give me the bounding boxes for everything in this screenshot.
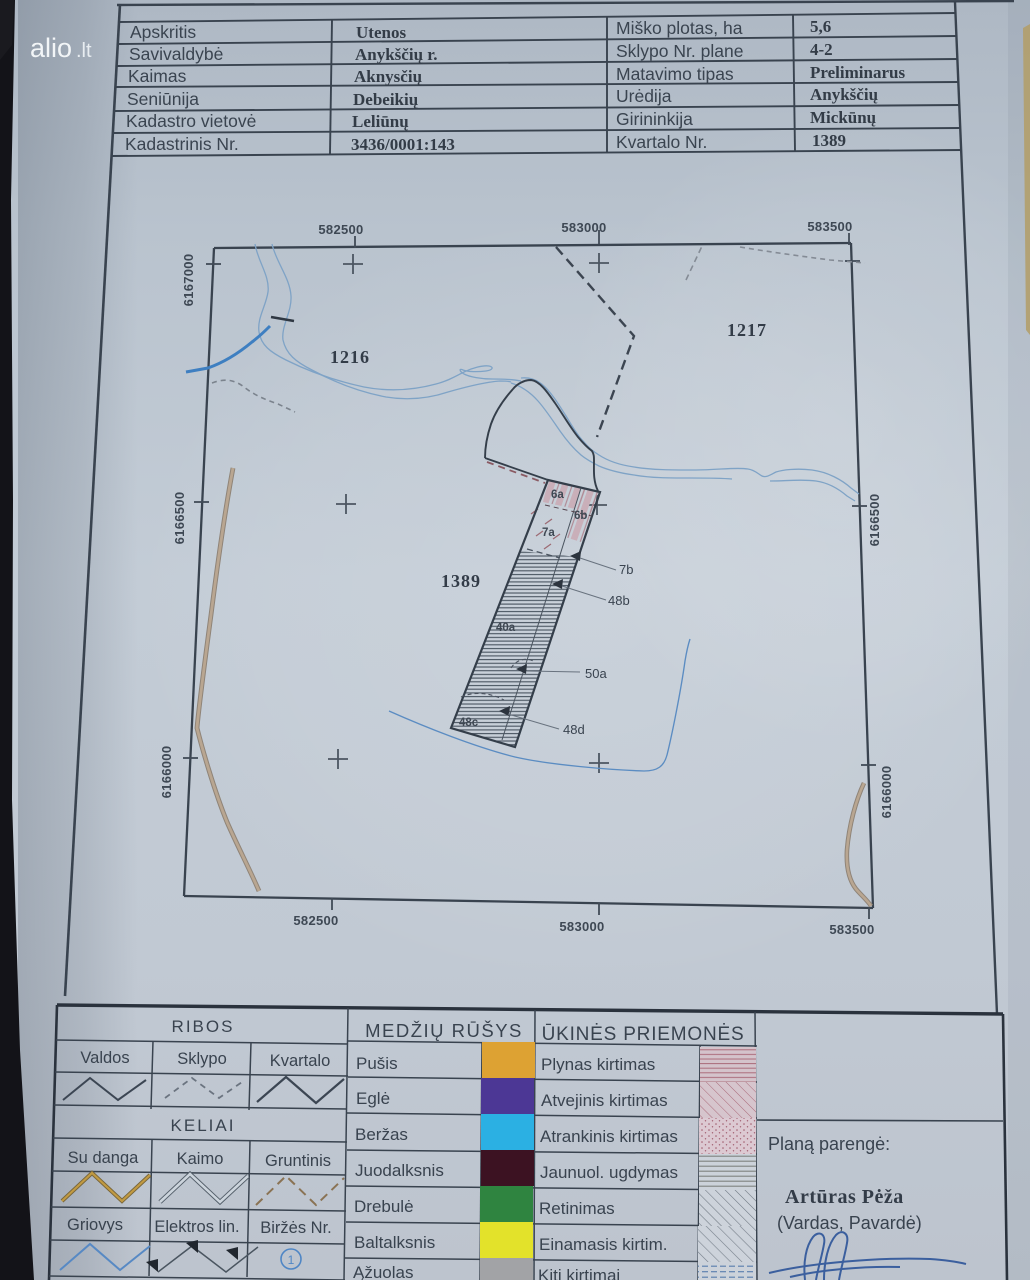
- svg-text:Atrankinis kirtimas: Atrankinis kirtimas: [540, 1127, 678, 1146]
- svg-text:Gruntinis: Gruntinis: [265, 1152, 331, 1170]
- svg-text:Ąžuolas: Ąžuolas: [353, 1263, 413, 1280]
- svg-text:Anykščių: Anykščių: [810, 85, 878, 104]
- svg-text:1: 1: [288, 1253, 295, 1267]
- svg-text:Elektros lin.: Elektros lin.: [154, 1218, 239, 1236]
- svg-text:6166500: 6166500: [172, 492, 187, 545]
- svg-text:Aknysčių: Aknysčių: [354, 67, 422, 86]
- svg-text:Eglė: Eglė: [356, 1089, 390, 1108]
- svg-text:Kaimas: Kaimas: [128, 66, 187, 86]
- svg-text:6167000: 6167000: [181, 254, 196, 307]
- svg-text:Matavimo tipas: Matavimo tipas: [616, 64, 734, 84]
- svg-text:Planą parengė:: Planą parengė:: [768, 1134, 890, 1154]
- svg-text:582500: 582500: [293, 913, 338, 928]
- svg-text:Jaunuol. ugdymas: Jaunuol. ugdymas: [540, 1163, 678, 1182]
- svg-text:Urėdija: Urėdija: [616, 86, 672, 106]
- svg-text:48b: 48b: [608, 593, 630, 608]
- svg-text:ŪKINĖS PRIEMONĖS: ŪKINĖS PRIEMONĖS: [542, 1024, 745, 1045]
- svg-text:5,6: 5,6: [810, 17, 831, 36]
- svg-text:Atvejinis kirtimas: Atvejinis kirtimas: [541, 1091, 668, 1110]
- svg-text:(Vardas, Pavardė): (Vardas, Pavardė): [777, 1213, 922, 1233]
- svg-text:Kiti kirtimai: Kiti kirtimai: [538, 1266, 620, 1280]
- svg-text:6b: 6b: [574, 510, 587, 522]
- svg-text:Griovys: Griovys: [67, 1216, 123, 1234]
- svg-text:583500: 583500: [807, 219, 852, 234]
- svg-text:583000: 583000: [559, 919, 604, 934]
- svg-text:48c: 48c: [459, 717, 479, 729]
- svg-text:Valdos: Valdos: [80, 1049, 129, 1067]
- svg-text:582500: 582500: [318, 222, 363, 237]
- svg-text:RIBOS: RIBOS: [172, 1017, 235, 1036]
- svg-text:Kvartalo: Kvartalo: [270, 1052, 331, 1070]
- svg-text:6a: 6a: [551, 489, 564, 501]
- svg-text:KELIAI: KELIAI: [171, 1116, 236, 1135]
- svg-text:7a: 7a: [542, 527, 555, 539]
- svg-text:alio: alio: [30, 33, 72, 63]
- svg-text:Retinimas: Retinimas: [539, 1199, 615, 1218]
- svg-text:Seniūnija: Seniūnija: [127, 89, 199, 109]
- svg-text:.lt: .lt: [76, 40, 92, 62]
- svg-text:1216: 1216: [330, 347, 370, 367]
- svg-text:1389: 1389: [812, 131, 846, 150]
- svg-text:7b: 7b: [619, 562, 633, 577]
- svg-text:MEDŽIŲ RŪŠYS: MEDŽIŲ RŪŠYS: [365, 1020, 523, 1041]
- svg-text:Savivaldybė: Savivaldybė: [129, 44, 223, 64]
- svg-text:Kadastrinis Nr.: Kadastrinis Nr.: [125, 134, 239, 154]
- svg-text:Leliūnų: Leliūnų: [352, 112, 409, 131]
- svg-text:Su danga: Su danga: [68, 1149, 139, 1167]
- svg-text:Juodalksnis: Juodalksnis: [355, 1161, 444, 1180]
- svg-text:Einamasis kirtim.: Einamasis kirtim.: [539, 1235, 667, 1254]
- svg-text:4-2: 4-2: [810, 40, 833, 59]
- svg-text:Baltalksnis: Baltalksnis: [354, 1233, 435, 1252]
- svg-text:Kvartalo Nr.: Kvartalo Nr.: [616, 132, 707, 152]
- svg-text:Utenos: Utenos: [356, 23, 406, 42]
- svg-text:6166000: 6166000: [879, 766, 894, 819]
- svg-text:1217: 1217: [727, 320, 767, 340]
- svg-text:583500: 583500: [829, 922, 874, 937]
- svg-text:Anykščių r.: Anykščių r.: [355, 45, 438, 64]
- svg-text:1389: 1389: [441, 571, 481, 591]
- svg-text:Beržas: Beržas: [355, 1125, 408, 1144]
- svg-text:Plynas kirtimas: Plynas kirtimas: [541, 1055, 655, 1074]
- svg-text:48d: 48d: [563, 722, 585, 737]
- svg-text:40a: 40a: [496, 622, 516, 634]
- svg-text:6166000: 6166000: [159, 746, 174, 799]
- svg-text:Biržės Nr.: Biržės Nr.: [260, 1219, 332, 1237]
- svg-text:6166500: 6166500: [867, 494, 882, 547]
- svg-text:Mickūnų: Mickūnų: [810, 108, 876, 127]
- svg-text:Apskritis: Apskritis: [130, 22, 196, 42]
- svg-text:Drebulė: Drebulė: [354, 1197, 414, 1216]
- svg-text:Miško plotas, ha: Miško plotas, ha: [616, 18, 743, 38]
- svg-text:Artūras Pėža: Artūras Pėža: [785, 1186, 904, 1208]
- svg-text:Kadastro vietovė: Kadastro vietovė: [126, 111, 256, 131]
- svg-text:50a: 50a: [585, 666, 607, 681]
- svg-text:583000: 583000: [561, 220, 606, 235]
- svg-text:Pušis: Pušis: [356, 1054, 398, 1073]
- svg-text:Sklypo: Sklypo: [177, 1050, 227, 1068]
- svg-text:Debeikių: Debeikių: [353, 90, 418, 109]
- svg-text:Kaimo: Kaimo: [177, 1150, 224, 1168]
- svg-text:3436/0001:143: 3436/0001:143: [351, 135, 455, 154]
- svg-text:Girininkija: Girininkija: [616, 109, 693, 129]
- svg-text:Sklypo Nr. plane: Sklypo Nr. plane: [616, 41, 743, 61]
- svg-text:Preliminarus: Preliminarus: [810, 63, 905, 82]
